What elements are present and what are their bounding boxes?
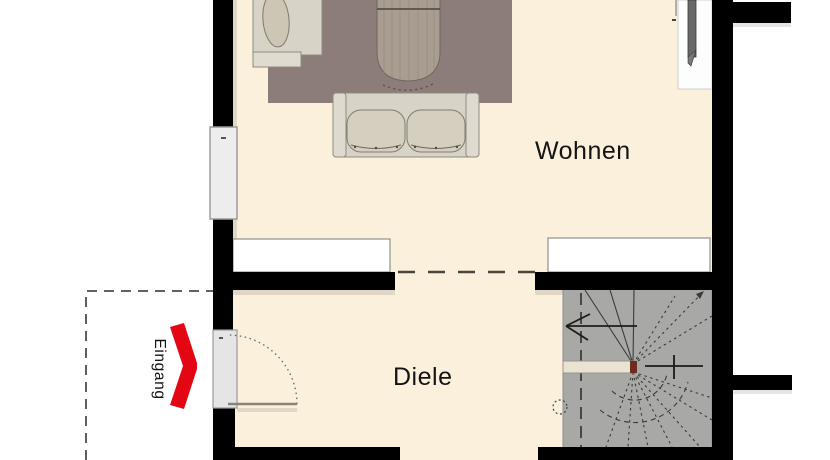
window xyxy=(210,127,237,219)
wall-left-lower xyxy=(213,407,235,460)
wood-grain xyxy=(384,0,434,80)
wall-divider-left xyxy=(215,272,395,290)
winder-staircase xyxy=(563,288,712,448)
wall-stub-right xyxy=(733,375,792,390)
entrance-label: Eingang xyxy=(150,330,168,408)
room-label-diele: Diele xyxy=(393,363,452,392)
wall-divider-right xyxy=(535,272,733,290)
wall-bottom-right xyxy=(538,447,733,460)
tv-screen xyxy=(688,0,696,57)
sideboard-right xyxy=(548,238,710,272)
sofa xyxy=(333,93,479,157)
wall-right xyxy=(712,0,733,460)
sofa-armrest-right xyxy=(466,93,479,157)
newel-post xyxy=(630,361,637,373)
wall-left-upper xyxy=(213,0,233,128)
sideboard-left xyxy=(233,239,390,272)
sofa-armrest-left xyxy=(333,93,346,157)
wall-bottom-left xyxy=(235,447,400,460)
room-label-wohnen: Wohnen xyxy=(535,137,631,166)
stair-handrail xyxy=(563,361,637,373)
floor-plan: Wohnen Diele Eingang xyxy=(0,0,830,460)
entrance-arrow-icon xyxy=(170,323,197,409)
tv-sideboard xyxy=(672,0,712,89)
wall-stub-top-right xyxy=(733,2,791,23)
